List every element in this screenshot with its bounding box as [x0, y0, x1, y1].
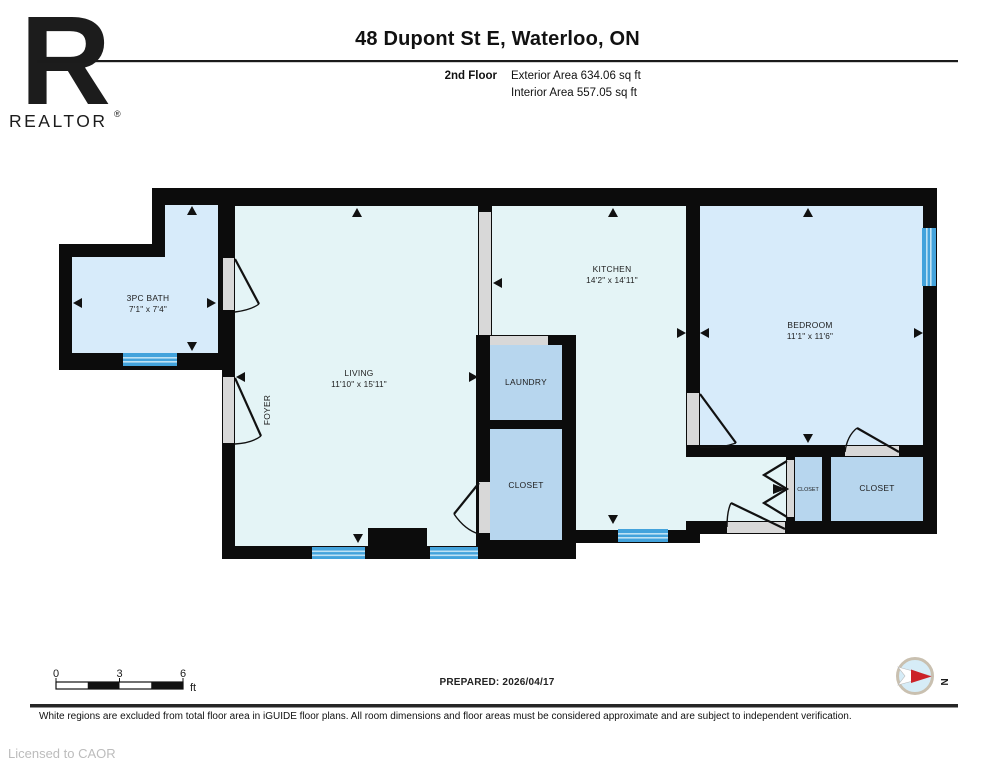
kitchen-dims: 14'2" x 14'11": [586, 276, 638, 285]
living-label: LIVING: [344, 368, 373, 378]
hall-closet-opening: [479, 482, 490, 533]
bath-window: [123, 353, 177, 366]
scale-bar: 0 3 6 ft: [53, 668, 196, 694]
bedroom-door-opening: [687, 393, 699, 447]
foyer-label: FOYER: [262, 395, 272, 425]
bath-door-opening: [223, 258, 234, 310]
realtor-logo: R REALTOR ®: [9, 0, 121, 131]
compass-icon: N: [898, 659, 950, 694]
laundry-label: LAUNDRY: [505, 377, 547, 387]
chimney-bump: [368, 528, 427, 559]
living-kitchen-opening: [479, 212, 491, 335]
bedroom-dims: 11'1" x 11'6": [787, 332, 833, 341]
hallway-connector: [686, 457, 700, 521]
footer-rule: [30, 704, 958, 708]
floorplan-page: 48 Dupont St E, Waterloo, ON 2nd Floor E…: [0, 0, 995, 768]
laundry-opening: [490, 336, 548, 345]
bath-label: 3PC BATH: [127, 293, 170, 303]
hall-closet-label: CLOSET: [508, 480, 543, 490]
realtor-wordmark: REALTOR: [9, 111, 108, 131]
living-window-1: [312, 547, 365, 559]
header-rule: [37, 60, 958, 62]
small-closet-label: CLOSET: [797, 487, 819, 493]
closet-divider-wall: [822, 457, 831, 521]
bedroom-closet-label: CLOSET: [859, 483, 894, 493]
bath-room: [72, 205, 218, 353]
scale-unit: ft: [190, 682, 196, 694]
kitchen-label: KITCHEN: [593, 264, 632, 274]
living-window-2: [430, 547, 478, 559]
entry-door-opening: [223, 377, 234, 443]
bath-dims: 7'1" x 7'4": [129, 305, 167, 314]
floorplan-graphic: R REALTOR ®: [0, 0, 995, 768]
bedroom-label: BEDROOM: [787, 320, 832, 330]
bedroom-window: [922, 228, 936, 286]
compass-north-label: N: [938, 678, 949, 685]
registered-mark-icon: ®: [114, 109, 121, 119]
kitchen-window: [618, 529, 668, 542]
living-dims: 11'10" x 15'11": [331, 380, 387, 389]
